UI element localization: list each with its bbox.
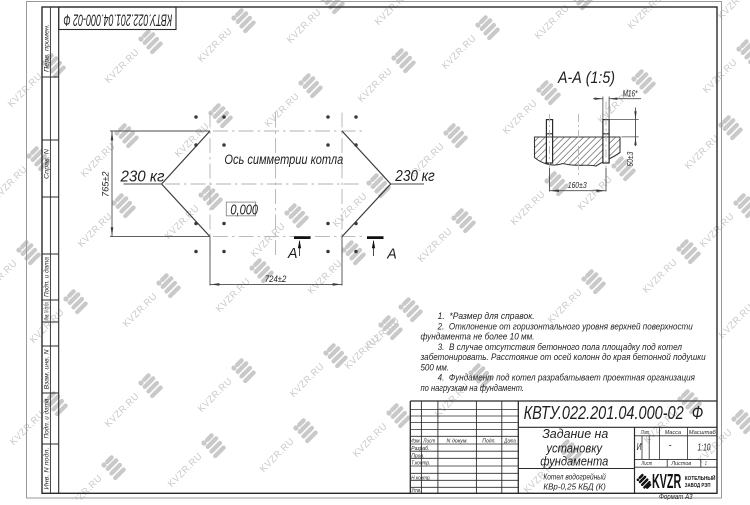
- svg-text:А: А: [287, 245, 297, 262]
- svg-text:Масса: Масса: [665, 430, 682, 436]
- svg-text:Взам. инв. N: Взам. инв. N: [43, 349, 50, 390]
- svg-text:4. Фундамент под котел разраб: 4. Фундамент под котел разрабатывает про…: [438, 373, 695, 383]
- svg-text:Разраб.: Разраб.: [411, 446, 429, 452]
- svg-text:Подп. и дата: Подп. и дата: [43, 256, 50, 297]
- svg-text:230 кг: 230 кг: [394, 168, 435, 185]
- svg-text:Задание на: Задание на: [542, 426, 608, 441]
- svg-text:Масштаб: Масштаб: [689, 430, 717, 436]
- svg-text:160±3: 160±3: [568, 181, 587, 190]
- svg-text:1. *Размер для справок.: 1. *Размер для справок.: [438, 311, 535, 321]
- svg-text:1:10: 1:10: [698, 442, 711, 453]
- svg-text:Утв.: Утв.: [410, 488, 421, 494]
- svg-text:КВТУ.022.201.04.000-02 Ф: КВТУ.022.201.04.000-02 Ф: [64, 10, 173, 29]
- svg-text:Подп.: Подп.: [482, 439, 496, 445]
- svg-text:фундамента: фундамента: [540, 454, 608, 469]
- svg-text:по нагрузкам на фундамент.: по нагрузкам на фундамент.: [421, 383, 525, 393]
- svg-text:И: И: [637, 442, 642, 453]
- svg-text:Пров.: Пров.: [411, 453, 424, 459]
- svg-text:Лист: Лист: [422, 439, 435, 445]
- svg-text:Лист: Лист: [641, 461, 653, 467]
- svg-text:Справ. N: Справ. N: [43, 148, 50, 179]
- svg-text:ЗАВОД РЭП: ЗАВОД РЭП: [685, 483, 711, 489]
- svg-text:Листов: Листов: [670, 461, 691, 467]
- svg-text:Инв. N подл.: Инв. N подл.: [43, 448, 50, 490]
- svg-text:KVZR: KVZR: [652, 471, 681, 493]
- svg-text:3. В случае отсутствия бетонн: 3. В случае отсутствия бетонного пола пл…: [438, 342, 683, 352]
- svg-text:Дата: Дата: [503, 439, 515, 445]
- svg-text:765±2: 765±2: [101, 172, 111, 198]
- svg-text:Лит.: Лит.: [640, 430, 650, 436]
- svg-text:Подп. и дата: Подп. и дата: [43, 398, 50, 439]
- svg-text:724±2: 724±2: [265, 274, 287, 284]
- svg-text:Инв. N дубл.: Инв. N дубл.: [43, 302, 50, 321]
- svg-text:500 мм.: 500 мм.: [421, 362, 450, 372]
- svg-text:50±3: 50±3: [626, 151, 635, 166]
- svg-text:Н.контр.: Н.контр.: [411, 476, 431, 482]
- svg-text:230 кг: 230 кг: [120, 169, 165, 186]
- svg-text:N докум.: N докум.: [447, 439, 469, 445]
- svg-text:Ось симметрии котла: Ось симметрии котла: [224, 152, 343, 167]
- svg-text:0,000: 0,000: [230, 202, 258, 218]
- svg-text:забетонировать. Расстояние от: забетонировать. Расстояние от осей колон…: [420, 352, 706, 362]
- svg-text:А-А (1:5): А-А (1:5): [557, 68, 615, 87]
- svg-text:КВр-0,25 КБД (К): КВр-0,25 КБД (К): [543, 482, 606, 491]
- svg-text:Изм.: Изм.: [410, 439, 421, 445]
- svg-text:КВТУ.022.201.04.000-02 Ф: КВТУ.022.201.04.000-02 Ф: [524, 402, 704, 423]
- svg-text:М16*: М16*: [623, 88, 638, 98]
- svg-text:Т.контр.: Т.контр.: [411, 461, 430, 467]
- svg-text:1: 1: [705, 461, 707, 467]
- svg-text:Котел водогрейный: Котел водогрейный: [543, 472, 606, 481]
- svg-text:КОТЕЛЬНЫЙ: КОТЕЛЬНЫЙ: [685, 474, 716, 482]
- svg-text:фундамента не более 10 мм.: фундамента не более 10 мм.: [421, 332, 535, 342]
- svg-text:2. Отклонение от горизонтальн: 2. Отклонение от горизонтального уровня …: [437, 321, 693, 331]
- svg-text:Перв. примен.: Перв. примен.: [43, 24, 50, 72]
- svg-text:А: А: [386, 246, 396, 263]
